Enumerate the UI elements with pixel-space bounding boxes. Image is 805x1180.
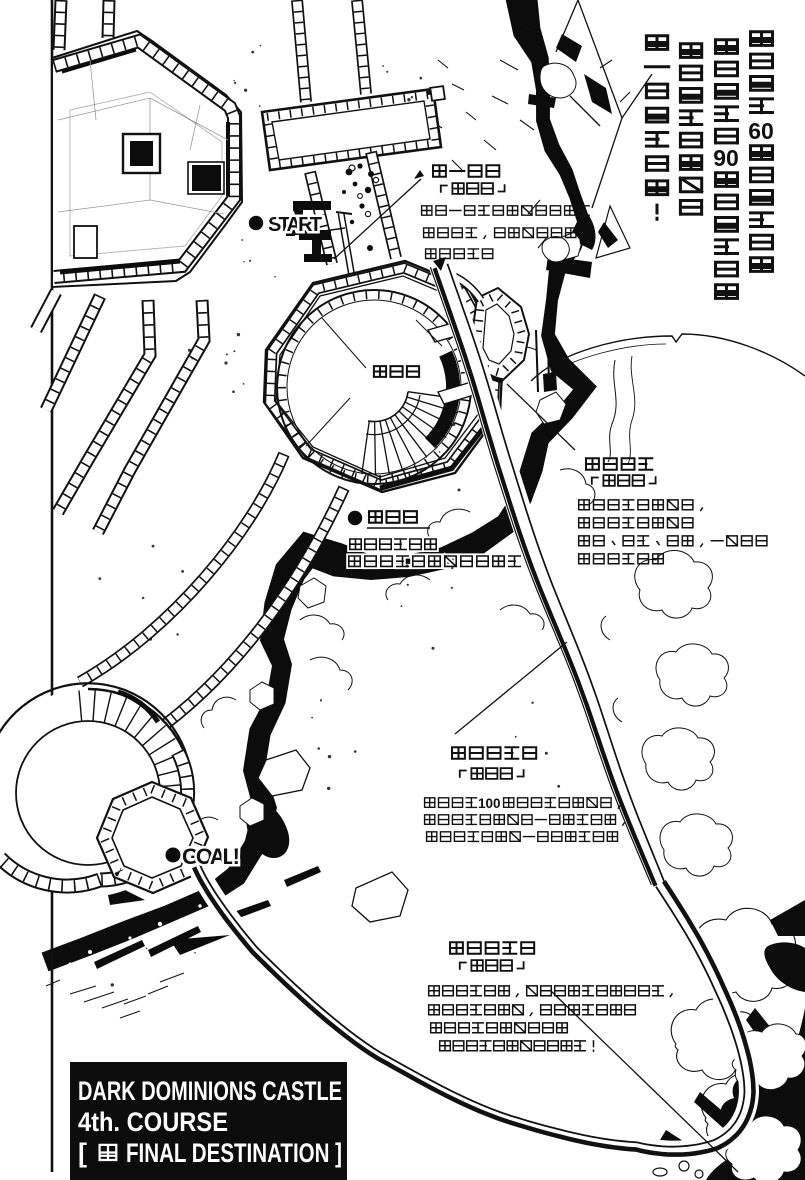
svg-text:90: 90 xyxy=(713,145,739,171)
svg-text:START: START xyxy=(268,214,322,236)
svg-text:100: 100 xyxy=(478,796,501,811)
svg-text:GOAL!: GOAL! xyxy=(182,844,240,869)
svg-text:[: [ xyxy=(78,1138,87,1168)
svg-text:60: 60 xyxy=(748,118,774,144)
svg-text:DARK DOMINIONS CASTLE: DARK DOMINIONS CASTLE xyxy=(78,1076,342,1106)
svg-text:FINAL DESTINATION ]: FINAL DESTINATION ] xyxy=(126,1138,342,1168)
svg-text:4th. COURSE: 4th. COURSE xyxy=(78,1107,228,1137)
